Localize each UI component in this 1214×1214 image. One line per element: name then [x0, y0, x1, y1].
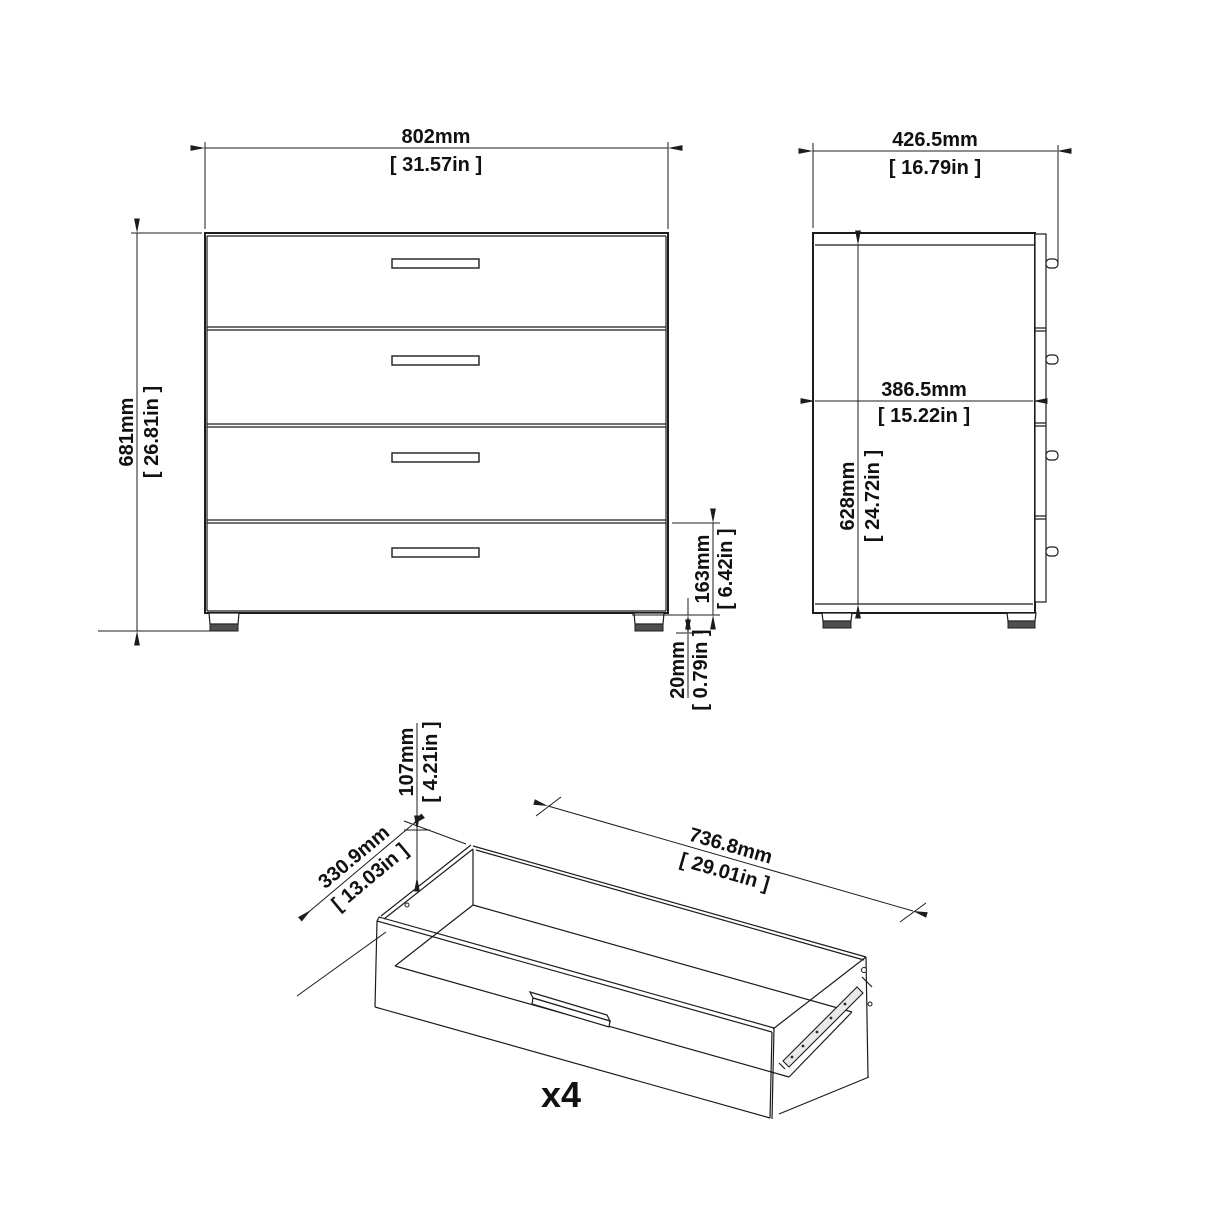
drawer-handle — [392, 356, 479, 365]
dim-label-in: [ 15.22in ] — [878, 405, 970, 427]
dim-label-in: [ 24.72in ] — [862, 450, 884, 542]
dim-label-mm: 426.5mm — [892, 129, 978, 151]
dim-label-mm: 107mm — [396, 728, 418, 797]
rail-body — [783, 987, 863, 1067]
dim-label-mm: 802mm — [402, 126, 471, 148]
dim-drawer-length: 736.8mm [ 29.01in ] — [548, 806, 913, 911]
foot-pad — [635, 624, 663, 631]
handle-peg — [1046, 259, 1058, 268]
side-handle-pegs — [1046, 259, 1058, 556]
handle-peg — [1046, 355, 1058, 364]
dim-side-depth: 426.5mm [ 16.79in ] — [813, 129, 1057, 179]
foot-pad — [823, 621, 851, 628]
foot-pad — [1008, 621, 1035, 628]
dim-label-mm: 20mm — [667, 641, 689, 699]
screw-hole — [862, 968, 867, 973]
technical-drawing-page: 802mm [ 31.57in ] 681mm [ 26.81in ] 163m… — [0, 0, 1214, 1214]
extension-lines — [297, 797, 926, 996]
dimension-line — [548, 806, 913, 911]
screw-hole — [868, 1002, 872, 1006]
drawer-box-edges — [381, 845, 869, 1114]
screw-hole — [405, 903, 409, 907]
dim-label-mm: 628mm — [837, 462, 859, 531]
dim-drawer-front-height: 163mm [ 6.42in ] — [692, 523, 737, 615]
side-left-foot — [822, 613, 852, 628]
drawer-slide-rail — [779, 968, 872, 1070]
foot-body — [209, 613, 239, 624]
drawer-handle — [392, 548, 479, 557]
dim-front-height: 681mm [ 26.81in ] — [116, 233, 163, 631]
dim-label-in: [ 16.79in ] — [889, 157, 981, 179]
side-drawer-front-strip — [1035, 234, 1046, 602]
drawer-handle-isometric — [530, 992, 610, 1027]
drawer-handle — [392, 453, 479, 462]
drawer-isometric-dimensions: 107mm [ 4.21in ] 330.9mm [ 13.03in ] 736… — [297, 721, 926, 1115]
drawer-isometric-view — [375, 845, 872, 1119]
dim-front-width: 802mm [ 31.57in ] — [205, 126, 668, 176]
front-left-foot — [209, 613, 239, 631]
foot-pad — [210, 624, 238, 631]
dim-label-in: [ 4.21in ] — [420, 721, 442, 802]
drawer-quantity-label: x4 — [541, 1074, 581, 1115]
dimension-diagram: 802mm [ 31.57in ] 681mm [ 26.81in ] 163m… — [0, 0, 1214, 1214]
handle-peg — [1046, 451, 1058, 460]
front-view — [205, 233, 668, 631]
foot-body — [822, 613, 852, 621]
side-right-foot — [1007, 613, 1036, 628]
handle-peg — [1046, 547, 1058, 556]
dim-label-in: [ 26.81in ] — [141, 386, 163, 478]
dim-label-mm: 386.5mm — [881, 379, 967, 401]
foot-body — [1007, 613, 1036, 621]
front-right-foot — [634, 613, 664, 631]
dim-label-in: [ 0.79in ] — [690, 629, 712, 710]
dim-label-in: [ 31.57in ] — [390, 154, 482, 176]
dim-drawer-depth: 330.9mm [ 13.03in ] — [311, 821, 413, 915]
side-view — [813, 233, 1058, 628]
dim-label-in: [ 6.42in ] — [715, 528, 737, 609]
drawer-handle — [392, 259, 479, 268]
dim-label-mm: 163mm — [692, 535, 714, 604]
dim-label-mm: 681mm — [116, 398, 138, 467]
